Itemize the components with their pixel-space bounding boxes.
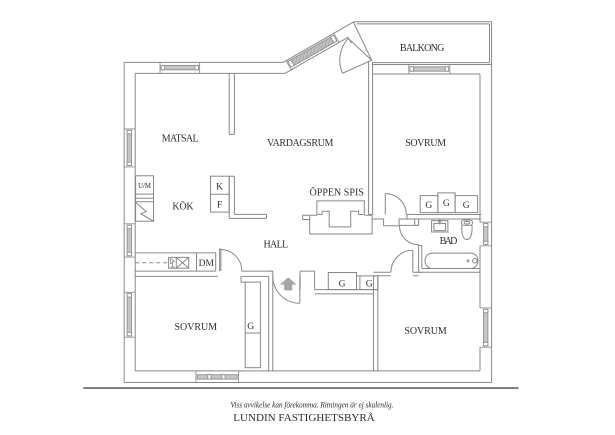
svg-text:LUNDIN FASTIGHETSBYRÅ: LUNDIN FASTIGHETSBYRÅ: [233, 412, 375, 424]
svg-text:G: G: [443, 199, 450, 209]
svg-text:HALL: HALL: [263, 240, 288, 251]
svg-text:G: G: [339, 280, 346, 290]
svg-text:Viss avvikelse kan förekomma.: Viss avvikelse kan förekomma. Ritningen …: [231, 399, 394, 409]
svg-text:SOVRUM: SOVRUM: [404, 326, 447, 337]
svg-text:BALKONG: BALKONG: [400, 43, 445, 54]
svg-text:BAD: BAD: [440, 236, 458, 247]
svg-text:VARDAGSRUM: VARDAGSRUM: [267, 138, 334, 149]
svg-text:SOVRUM: SOVRUM: [174, 322, 217, 333]
svg-text:G: G: [463, 201, 470, 211]
svg-text:MATSAL: MATSAL: [162, 134, 199, 145]
svg-text:G: G: [247, 322, 254, 332]
svg-text:U/M: U/M: [138, 183, 151, 190]
svg-text:ÖPPEN SPIS: ÖPPEN SPIS: [310, 187, 365, 199]
svg-text:K: K: [216, 183, 223, 193]
svg-text:G: G: [425, 201, 432, 211]
svg-text:G: G: [366, 280, 373, 290]
svg-text:DM: DM: [199, 259, 215, 269]
svg-text:SOVRUM: SOVRUM: [405, 138, 446, 149]
svg-text:KÖK: KÖK: [172, 200, 194, 212]
svg-text:F: F: [217, 200, 222, 210]
